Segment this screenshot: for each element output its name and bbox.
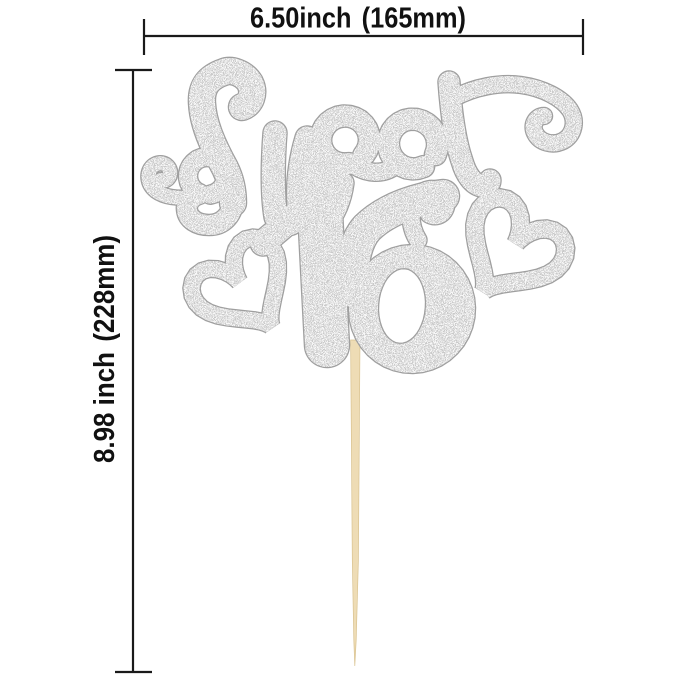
svg-text:6.50inch (165mm): 6.50inch (165mm)	[250, 3, 466, 35]
svg-text:8.98 inch (228mm): 8.98 inch (228mm)	[89, 235, 121, 463]
